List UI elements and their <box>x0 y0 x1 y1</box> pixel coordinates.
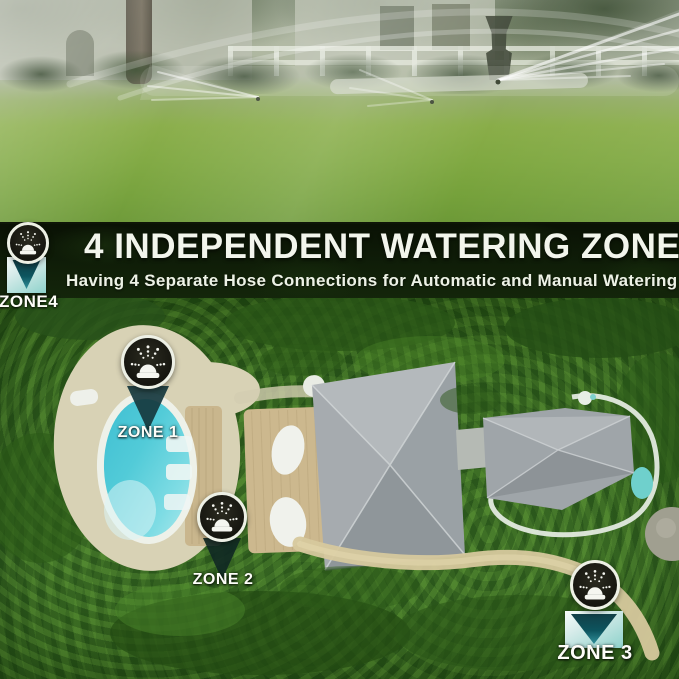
small-pond <box>631 467 653 499</box>
stone-dome <box>645 507 679 561</box>
pool-steps <box>164 436 192 510</box>
headline-banner: 4 INDEPENDENT WATERING ZONE Having 4 Sep… <box>0 222 679 298</box>
product-marketing-image: 4 INDEPENDENT WATERING ZONE Having 4 Sep… <box>0 0 679 679</box>
aerial-scene-graphic <box>0 298 679 679</box>
banner-title: 4 INDEPENDENT WATERING ZONE <box>84 227 679 267</box>
banner-subtitle: Having 4 Separate Hose Connections for A… <box>66 271 677 291</box>
aerial-yard-view <box>0 298 679 679</box>
lawn-sprinkler-photo <box>0 0 679 224</box>
water-spray-graphic <box>0 0 679 224</box>
wood-decks <box>185 406 334 553</box>
main-house-roof <box>312 362 465 570</box>
